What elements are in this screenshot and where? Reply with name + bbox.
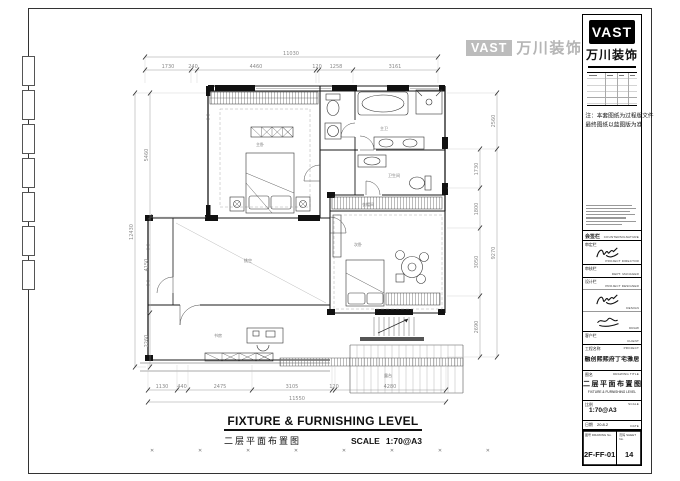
- drawing-title-label-en: DRAWING TITLE: [613, 372, 639, 376]
- room-label: 露台: [384, 372, 392, 378]
- scale-row: 比例 SCALE 1:70@A3: [583, 400, 641, 420]
- countersign-label-cn: 会签栏: [585, 233, 600, 240]
- dim-label: 4280: [384, 384, 397, 390]
- toilet: [410, 176, 432, 190]
- project-label-cn: 工程名称: [585, 346, 601, 352]
- dim-label: 11030: [283, 51, 299, 57]
- binding-tab: [22, 260, 35, 290]
- shelf: [333, 215, 341, 257]
- binding-tab: [22, 192, 35, 222]
- caption-title-cn: 二层平面布置图: [224, 434, 301, 447]
- dim-label: 1800: [474, 203, 480, 216]
- project-name: 融创熙熙府丁宅雅居: [583, 354, 641, 363]
- caption-scale-label: SCALE: [351, 436, 380, 446]
- binding-tab: [22, 124, 35, 154]
- countersign-label-en: COUNTERSIGNATURE: [604, 235, 639, 239]
- sign-label-cn: 设计栏: [585, 279, 597, 285]
- washer: [325, 123, 341, 139]
- binding-tab: [22, 90, 35, 120]
- dim-label: 440: [177, 384, 187, 390]
- sheet-number: 14: [617, 450, 641, 459]
- divider: [588, 66, 636, 68]
- room-label: 衣帽间: [362, 201, 374, 207]
- dim-label: 240: [188, 64, 198, 70]
- dim-label: 2690: [474, 321, 480, 334]
- dim-label: 4150: [144, 259, 150, 272]
- sign-row-designer: 设计栏 PROJECT DESIGNER: [583, 277, 641, 289]
- dim-label: 3161: [389, 64, 402, 70]
- room-label: 书房: [214, 332, 222, 338]
- disclaimer-text: [586, 203, 638, 227]
- closet-band: [332, 197, 442, 209]
- caption-scale: SCALE1:70@A3: [351, 436, 422, 446]
- double-vanity: [374, 137, 424, 149]
- room-label: 卫生间: [388, 172, 400, 178]
- cabinet-band: [386, 293, 440, 305]
- sign-label-en: PROJECT DESIGNER: [605, 284, 639, 288]
- doors: [157, 123, 380, 325]
- project-row: 工程名称 PROJECT 融创熙熙府丁宅雅居: [583, 344, 641, 370]
- date-value: 20.8.2: [597, 422, 608, 427]
- binding-tab: [22, 56, 35, 86]
- binding-tab: [22, 158, 35, 188]
- signature-scribble: [595, 245, 621, 260]
- sign-label-cn: 审核栏: [585, 266, 597, 272]
- deck-band: [280, 358, 463, 366]
- drawing-sheet: VAST 万川装饰: [0, 0, 680, 481]
- number-box: 图号 DRAWING No. 2F-FF-01 页码 SHEET No. 14: [583, 429, 641, 465]
- drawing-no-cell: 图号 DRAWING No. 2F-FF-01: [583, 431, 616, 465]
- dim-label: 1730: [474, 163, 480, 176]
- dresser: [251, 127, 293, 137]
- title-block: VAST 万川装饰 注：本套图纸为过程版文件 最终图纸以蓝图版为准 会签栏 CO…: [582, 14, 642, 466]
- bathtub: [358, 92, 408, 115]
- desk: [247, 328, 283, 351]
- drawing-title-en: FIXTURE & FURNISHING LEVEL: [583, 390, 641, 394]
- plot-note: 注：本套图纸为过程版文件 最终图纸以蓝图版为准: [585, 112, 638, 130]
- sign-label-en: DEPT. MANAGER: [612, 272, 639, 276]
- drawing-title-cn: 二层平面布置图: [583, 379, 641, 389]
- dim-label: 4460: [250, 64, 263, 70]
- wall-solids: [145, 85, 448, 361]
- dim-label: 12430: [129, 224, 135, 240]
- master-bed: [246, 153, 294, 213]
- sign-label-en: DRAW: [629, 326, 639, 330]
- caption-scale-value: 1:70@A3: [386, 436, 422, 446]
- dim-label: 1130: [156, 384, 169, 390]
- project-label-en: PROJECT: [624, 346, 639, 350]
- dim-label: 3105: [286, 384, 299, 390]
- sign-label-cn: 客户栏: [585, 333, 597, 339]
- company-logo: VAST: [589, 20, 635, 44]
- fold-ticks: ✕✕✕✕✕✕✕✕: [150, 448, 490, 454]
- dim-label: 3050: [474, 256, 480, 269]
- room-label: 主卧: [256, 141, 264, 147]
- company-name: 万川装饰: [583, 46, 641, 63]
- binding-tab: [22, 226, 35, 256]
- terrace-deck: [357, 345, 455, 393]
- tea-table: [396, 251, 429, 284]
- dim-label: 2475: [214, 384, 227, 390]
- sign-row-manager: 审核栏 DEPT. MANAGER: [583, 264, 641, 277]
- toilet: [326, 94, 340, 116]
- furniture: [157, 90, 463, 393]
- drawing-no-label-cn: 图号: [585, 433, 591, 437]
- room-label: 次卧: [354, 241, 362, 247]
- void-diagonal: [176, 223, 326, 303]
- plot-note-line1: 注：本套图纸为过程版文件: [585, 112, 638, 121]
- dim-label: 2560: [491, 115, 497, 128]
- sheet-no-label: 页码 SHEET No.: [619, 433, 641, 441]
- signature-scribble: [595, 292, 621, 307]
- sign-row-design: DESIGN: [583, 289, 641, 311]
- drawing-number: 2F-FF-01: [583, 450, 616, 459]
- dim-label: 11550: [289, 396, 305, 402]
- scale-value: 1:70@A3: [589, 407, 641, 414]
- drawing-title-label-cn: 图名: [585, 372, 593, 378]
- caption: FIXTURE & FURNISHING LEVEL 二层平面布置图 SCALE…: [224, 414, 422, 447]
- dim-label: 1730: [162, 64, 175, 70]
- room-label: 主卫: [380, 125, 388, 131]
- walls: [140, 86, 463, 393]
- date-label-en: DATE: [630, 424, 639, 428]
- sign-label-en: DESIGN: [626, 306, 639, 310]
- drawing-no-label: 图号 DRAWING No.: [585, 433, 612, 437]
- dim-label: 2260: [144, 335, 150, 348]
- plot-note-line2: 最终图纸以蓝图版为准: [585, 121, 638, 130]
- single-bed: [346, 260, 384, 306]
- room-label: 挑空: [244, 257, 252, 263]
- sign-label-en: PROJECT DIRECTOR: [605, 259, 639, 263]
- shower: [416, 90, 442, 114]
- dim-label: 9270: [491, 247, 497, 260]
- dim-label: 120: [312, 64, 322, 70]
- wardrobe: [210, 92, 318, 104]
- vanity: [358, 155, 386, 167]
- dim-label: 120: [329, 384, 339, 390]
- scale-label-cn: 比例: [585, 402, 593, 408]
- floor-plan: 11030 1730 240 4460 120 1258 3161 12430 …: [120, 45, 520, 415]
- spacer: [583, 130, 641, 202]
- nightstand: [230, 197, 310, 211]
- dim-label: 5460: [144, 149, 150, 162]
- sign-row-draw: DRAW: [583, 311, 641, 331]
- sign-label-en: CLIENT: [627, 339, 639, 343]
- drawing-title-row: 图名 DRAWING TITLE 二层平面布置图 FIXTURE & FURNI…: [583, 370, 641, 400]
- scale-label-en: SCALE: [628, 402, 639, 406]
- drawing-no-label-en: DRAWING No.: [592, 433, 612, 437]
- dim-label: 1258: [330, 64, 343, 70]
- sign-row-client: 客户栏 CLIENT: [583, 331, 641, 344]
- date-label-cn: 日期: [585, 422, 593, 428]
- date-row: 日期 20.8.2 DATE: [583, 420, 641, 429]
- watermark-brand: 万川装饰: [516, 37, 582, 58]
- sheet-no-cell: 页码 SHEET No. 14: [616, 431, 641, 465]
- sign-row-director: 审定栏 PROJECT DIRECTOR: [583, 240, 641, 264]
- stairs: [360, 317, 424, 341]
- revision-table: [587, 72, 637, 106]
- caption-title-en: FIXTURE & FURNISHING LEVEL: [224, 414, 422, 431]
- countersign-row: 会签栏 COUNTERSIGNATURE: [583, 230, 641, 240]
- signature-scribble: [595, 314, 621, 328]
